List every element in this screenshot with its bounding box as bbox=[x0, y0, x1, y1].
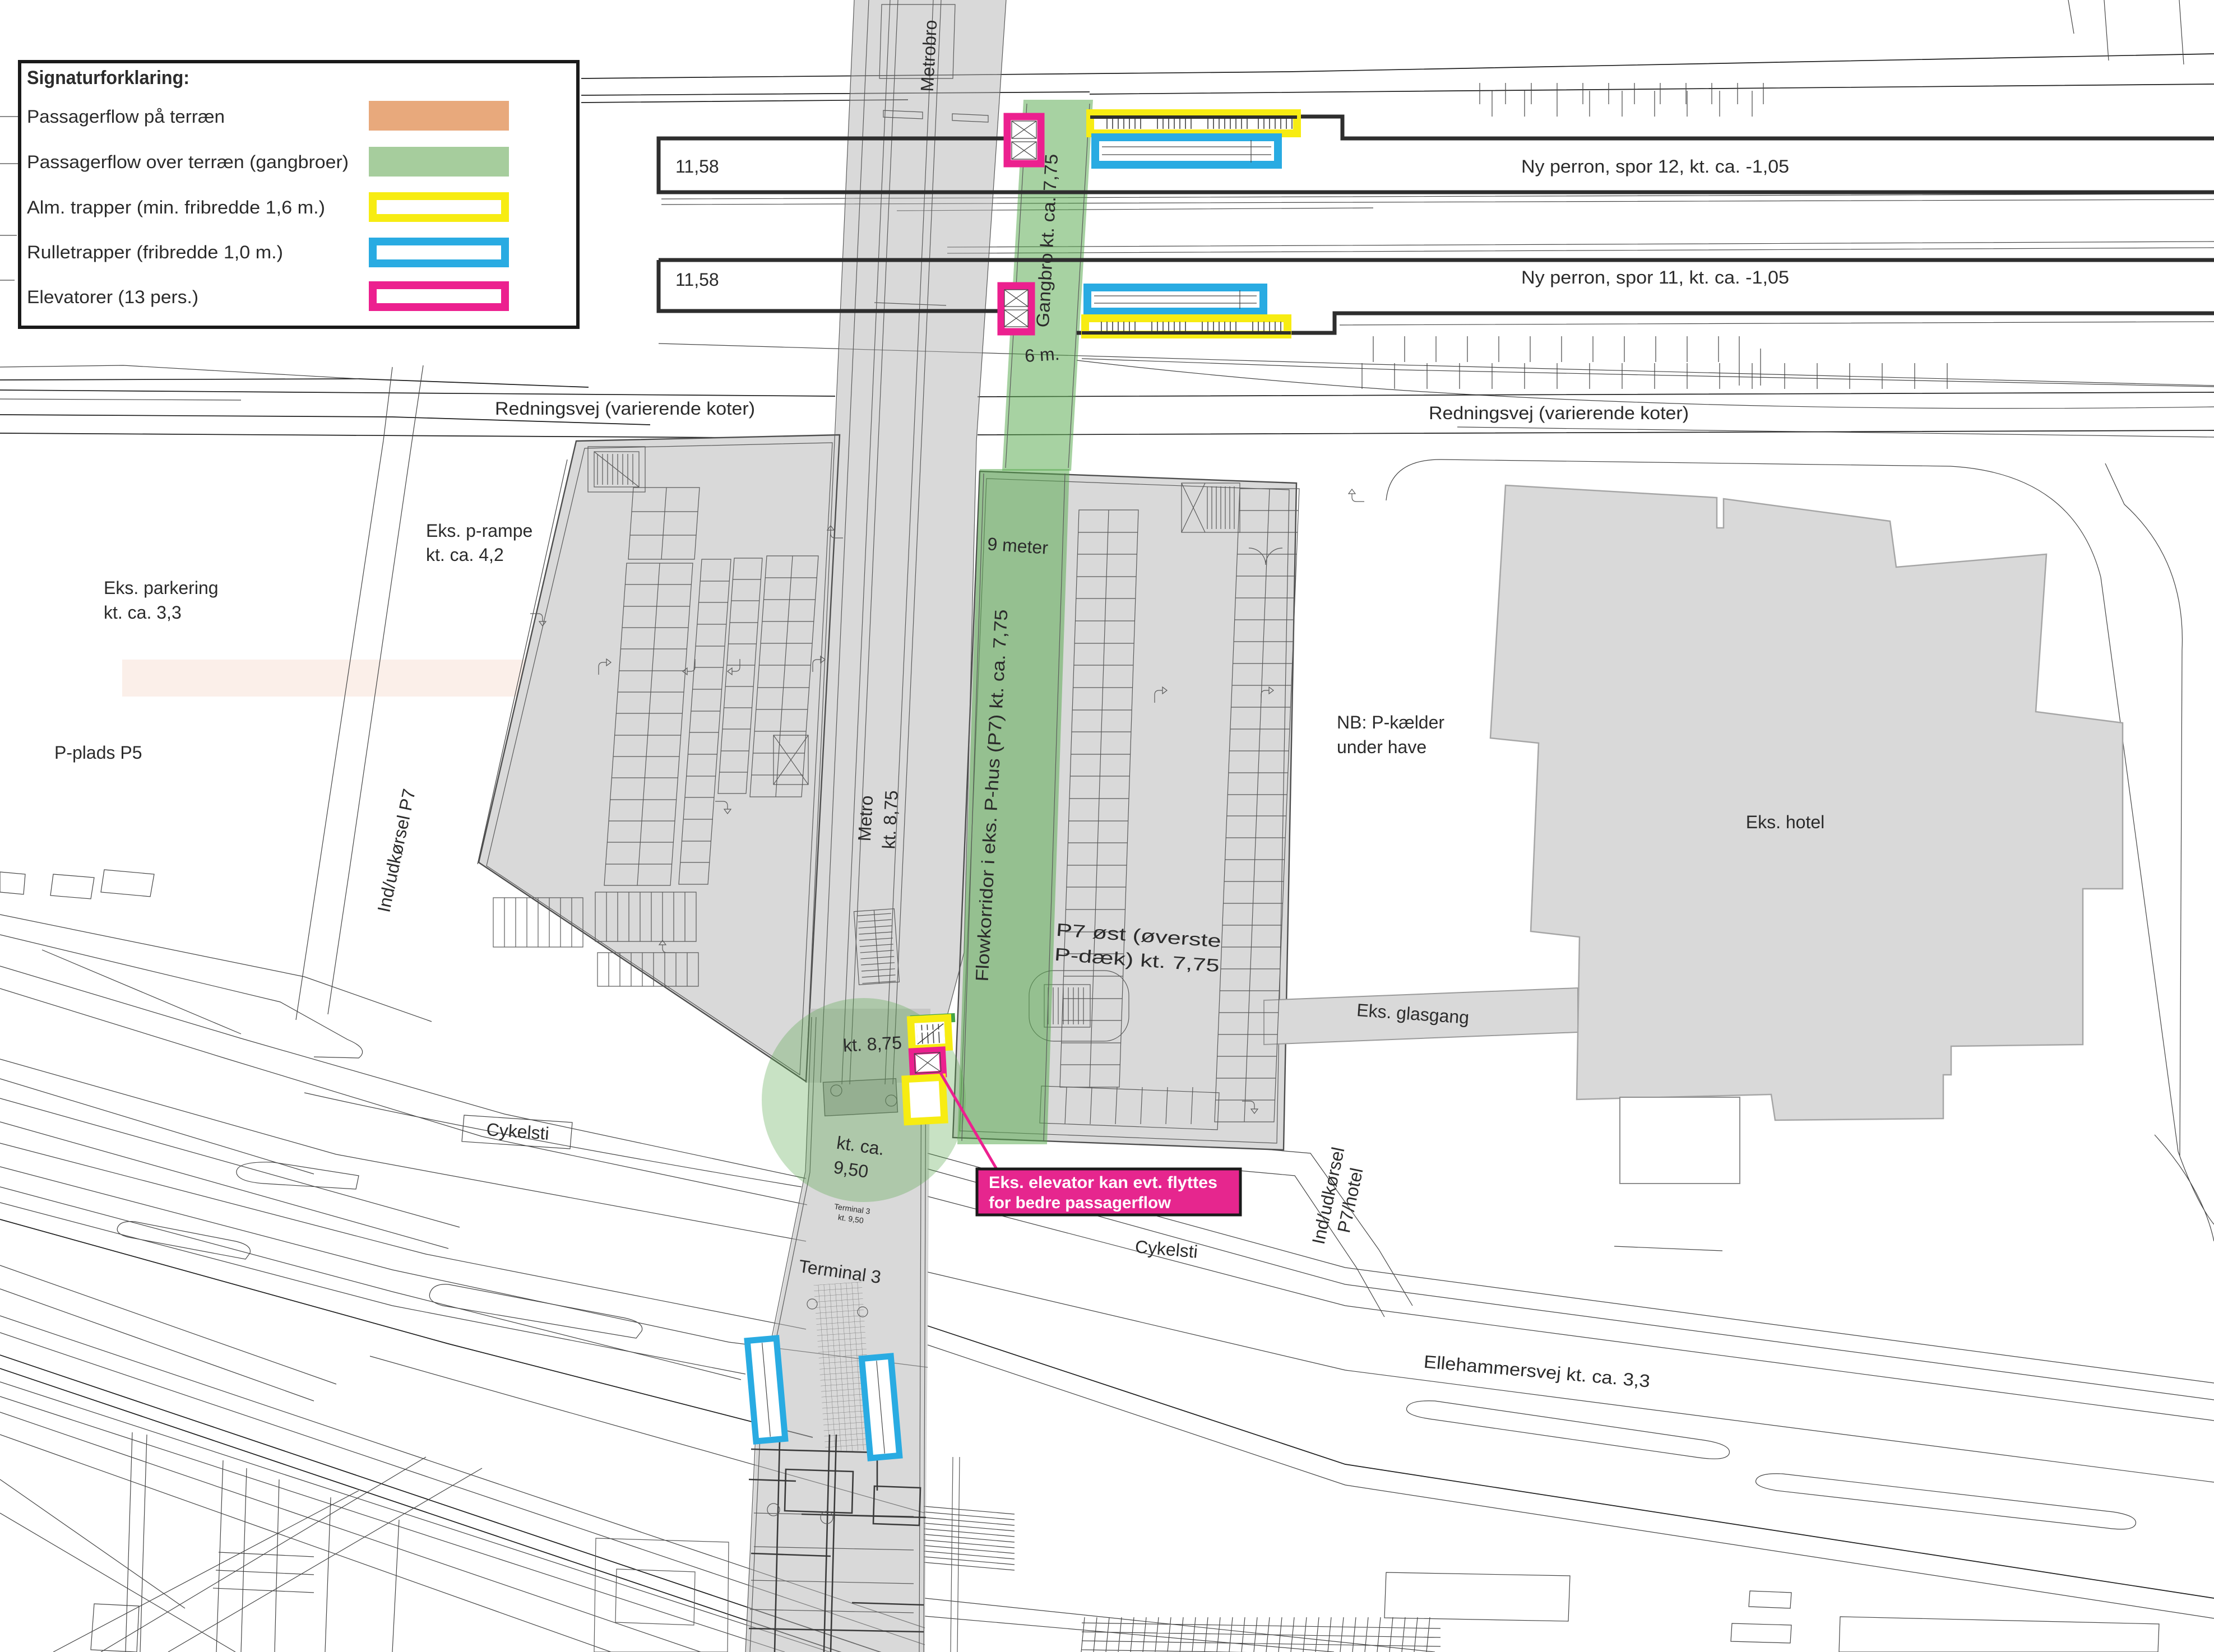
svg-text:Redningsvej (varierende koter): Redningsvej (varierende koter) bbox=[495, 398, 755, 419]
svg-text:for bedre passagerflow: for bedre passagerflow bbox=[989, 1194, 1171, 1212]
svg-text:P-plads P5: P-plads P5 bbox=[54, 743, 142, 763]
svg-text:NB: P-kælder: NB: P-kælder bbox=[1337, 712, 1444, 732]
svg-text:9 meter: 9 meter bbox=[986, 533, 1049, 558]
svg-text:6 m.: 6 m. bbox=[1024, 344, 1060, 366]
svg-text:Elevatorer (13 pers.): Elevatorer (13 pers.) bbox=[27, 287, 198, 307]
svg-text:Passagerflow på terræn: Passagerflow på terræn bbox=[27, 106, 225, 127]
svg-text:kt. ca. 4,2: kt. ca. 4,2 bbox=[426, 545, 504, 565]
svg-text:11,58: 11,58 bbox=[675, 156, 719, 177]
svg-text:Ny perron, spor 11, kt. ca. -1: Ny perron, spor 11, kt. ca. -1,05 bbox=[1521, 267, 1789, 287]
svg-text:Passagerflow over terræn (gang: Passagerflow over terræn (gangbroer) bbox=[27, 152, 349, 172]
svg-text:Eks. elevator kan evt. flyttes: Eks. elevator kan evt. flyttes bbox=[989, 1173, 1217, 1192]
svg-text:kt. 8,75: kt. 8,75 bbox=[878, 790, 901, 850]
svg-text:Eks. p-rampe: Eks. p-rampe bbox=[426, 521, 532, 541]
svg-text:kt. ca. 3,3: kt. ca. 3,3 bbox=[104, 602, 182, 623]
svg-text:Metro: Metro bbox=[854, 795, 877, 842]
svg-text:Eks. parkering: Eks. parkering bbox=[104, 578, 219, 598]
svg-text:under have: under have bbox=[1337, 737, 1426, 757]
svg-text:Redningsvej (varierende koter): Redningsvej (varierende koter) bbox=[1429, 403, 1689, 423]
svg-text:Rulletrapper (fribredde 1,0 m.: Rulletrapper (fribredde 1,0 m.) bbox=[27, 242, 283, 262]
svg-text:Eks. hotel: Eks. hotel bbox=[1746, 812, 1825, 832]
svg-text:11,58: 11,58 bbox=[675, 270, 719, 290]
svg-text:Alm. trapper (min. fribredde 1: Alm. trapper (min. fribredde 1,6 m.) bbox=[27, 197, 325, 217]
svg-text:Metrobro: Metrobro bbox=[917, 20, 941, 92]
svg-text:Signaturforklaring:: Signaturforklaring: bbox=[27, 67, 189, 89]
svg-text:Ny perron, spor 12, kt. ca. -1: Ny perron, spor 12, kt. ca. -1,05 bbox=[1521, 156, 1789, 177]
svg-text:kt. 8,75: kt. 8,75 bbox=[842, 1032, 902, 1055]
